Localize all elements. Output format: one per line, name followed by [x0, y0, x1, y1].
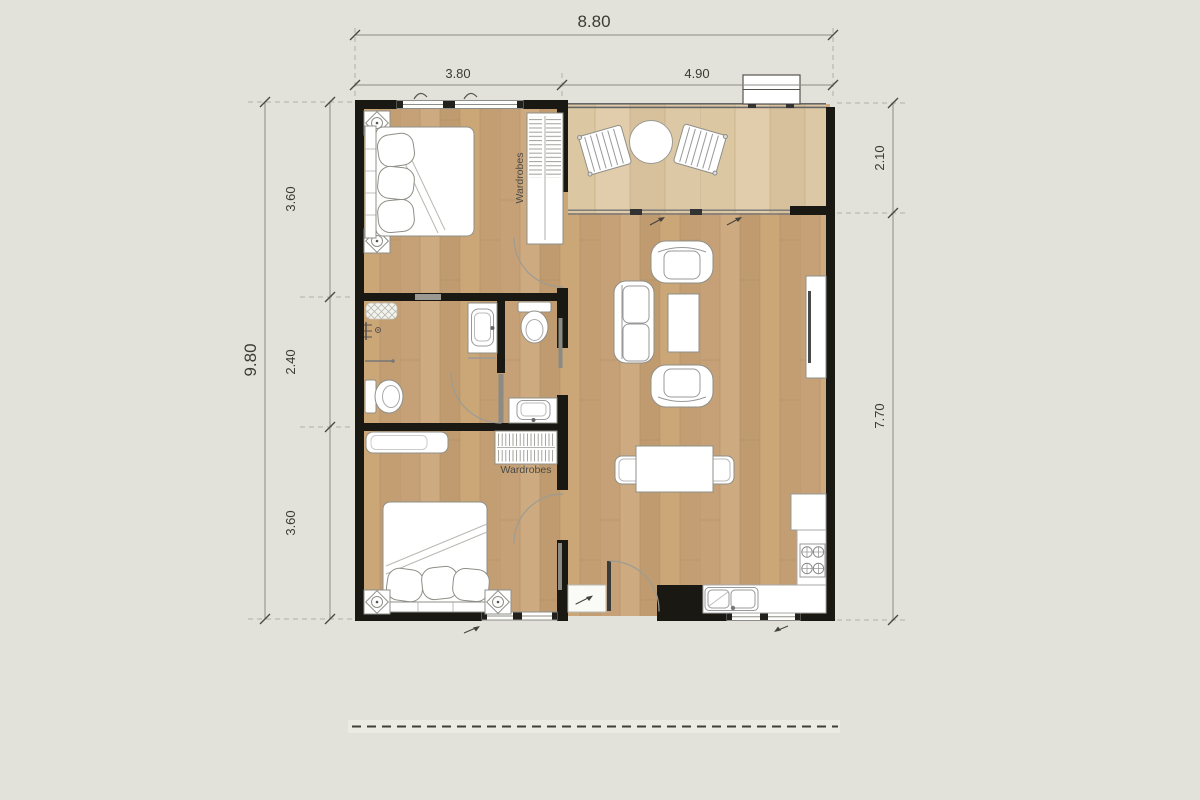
- sink-icon: [468, 303, 497, 353]
- wall-bath-divider: [497, 301, 505, 373]
- armchair-icon: [651, 241, 713, 283]
- wall-left: [355, 100, 364, 621]
- shower-mat-icon: [366, 303, 397, 319]
- toilet-icon: [365, 380, 403, 413]
- bed-icon: [365, 126, 474, 238]
- dim-left-middle: 2.40: [283, 349, 298, 374]
- sofa-icon: [614, 281, 654, 363]
- floor-plan: Wardrobes: [0, 0, 1200, 800]
- wall-right: [826, 107, 835, 621]
- wall-bath-top: [355, 293, 568, 301]
- section-line: [348, 720, 840, 733]
- tv-console-icon: [806, 276, 826, 378]
- stove-icon: [800, 544, 825, 577]
- dim-right-bottom: 7.70: [872, 403, 887, 428]
- wardrobes-bottom-label: Wardrobes: [501, 464, 552, 476]
- nightstand-icon: [364, 590, 390, 614]
- dim-left-overall: 9.80: [241, 343, 260, 376]
- dining-table-icon: [636, 446, 713, 492]
- dim-right-top: 2.10: [872, 145, 887, 170]
- dim-left-top: 3.60: [283, 186, 298, 211]
- coffee-table-icon: [668, 294, 699, 352]
- kitchen-sink-icon: [705, 588, 758, 611]
- floor-plan-page: Wardrobes: [0, 0, 1200, 800]
- round-table-icon: [630, 121, 673, 164]
- wall-bath-bottom: [355, 423, 568, 431]
- dim-top-left: 3.80: [445, 66, 470, 81]
- wall-entry-block: [657, 585, 703, 621]
- dim-top-right: 4.90: [684, 66, 709, 81]
- door-bathroom2-sliding: [559, 318, 563, 368]
- nightstand-icon: [485, 590, 511, 614]
- fridge-icon: [791, 494, 826, 530]
- dim-top-overall: 8.80: [577, 12, 610, 31]
- dim-left-bottom: 3.60: [283, 510, 298, 535]
- wall-core-c: [557, 395, 568, 490]
- ac-unit-icon: [743, 75, 800, 108]
- wardrobe-icon: [527, 113, 563, 244]
- bedroom-1-furniture: Wardrobes: [364, 111, 563, 253]
- wall-top-a: [355, 100, 397, 109]
- wardrobe-icon: [495, 431, 557, 464]
- bed-icon: [383, 502, 490, 612]
- door-bathroom1-pocket: [415, 294, 441, 300]
- wall-balcony-stub: [790, 206, 826, 215]
- armchair-icon: [651, 365, 713, 407]
- desk-icon: [366, 432, 448, 453]
- wardrobes-top-label: Wardrobes: [514, 153, 526, 204]
- sink-icon: [509, 398, 557, 423]
